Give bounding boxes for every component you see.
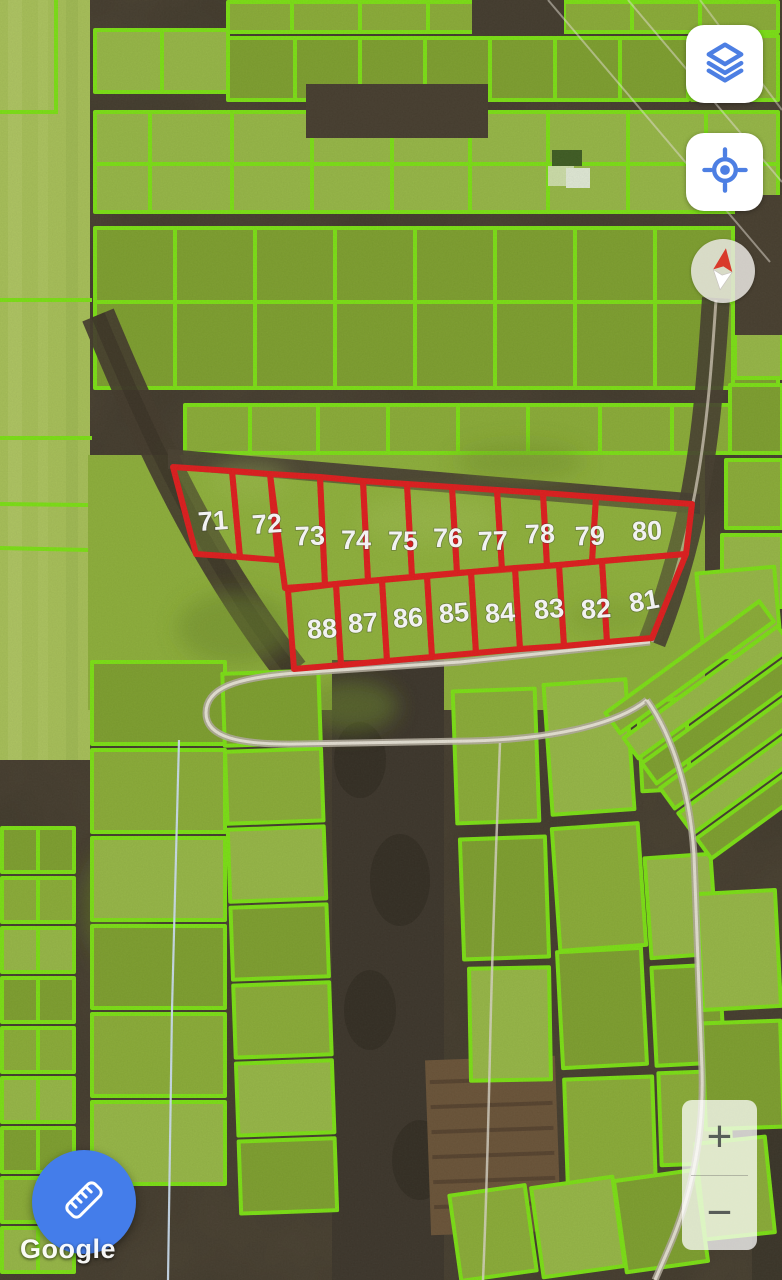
- zoom-out-button[interactable]: −: [682, 1176, 757, 1251]
- zoom-in-button[interactable]: +: [682, 1100, 757, 1175]
- ruler-icon: [53, 1169, 115, 1236]
- zoom-control: + −: [682, 1100, 757, 1250]
- map-canvas[interactable]: 71 72 73 74 75 76 77 78 79 80 88 87 86 8…: [0, 0, 782, 1280]
- my-location-icon: [699, 144, 751, 201]
- my-location-button[interactable]: [686, 133, 763, 211]
- grain-overlay-light: [0, 0, 782, 1280]
- layers-button[interactable]: [686, 25, 763, 103]
- satellite-imagery: 71 72 73 74 75 76 77 78 79 80 88 87 86 8…: [0, 0, 782, 1280]
- google-attribution: Google: [20, 1234, 116, 1265]
- layers-icon: [699, 36, 751, 93]
- compass-needle-icon: [695, 241, 751, 302]
- compass-button[interactable]: [691, 239, 755, 303]
